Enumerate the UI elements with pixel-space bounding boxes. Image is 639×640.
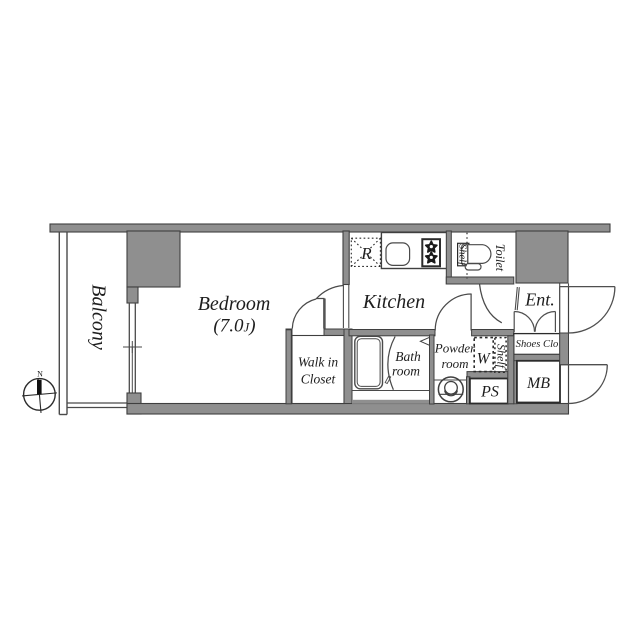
svg-text:Balcony: Balcony xyxy=(88,284,110,350)
svg-text:N: N xyxy=(37,370,43,379)
svg-text:PS: PS xyxy=(480,384,499,401)
svg-text:Bedroom: Bedroom xyxy=(198,293,271,315)
svg-text:Shelf: Shelf xyxy=(494,344,508,370)
svg-text:R: R xyxy=(360,244,372,263)
svg-text:Toilet: Toilet xyxy=(493,244,507,272)
svg-text:Shelf: Shelf xyxy=(457,244,468,267)
svg-text:(7.0J): (7.0J) xyxy=(213,316,255,337)
svg-text:Closet: Closet xyxy=(301,372,337,387)
svg-text:MB: MB xyxy=(526,375,550,392)
svg-text:room: room xyxy=(442,356,469,371)
svg-text:Walk in: Walk in xyxy=(298,355,339,370)
svg-text:Shoes Clo: Shoes Clo xyxy=(516,339,559,350)
svg-text:Powder: Powder xyxy=(434,341,476,356)
svg-text:W: W xyxy=(477,351,492,368)
svg-text:room: room xyxy=(392,364,420,379)
svg-text:Ent.: Ent. xyxy=(524,290,555,310)
svg-text:Bath: Bath xyxy=(395,349,421,364)
svg-text:Kitchen: Kitchen xyxy=(362,291,425,313)
